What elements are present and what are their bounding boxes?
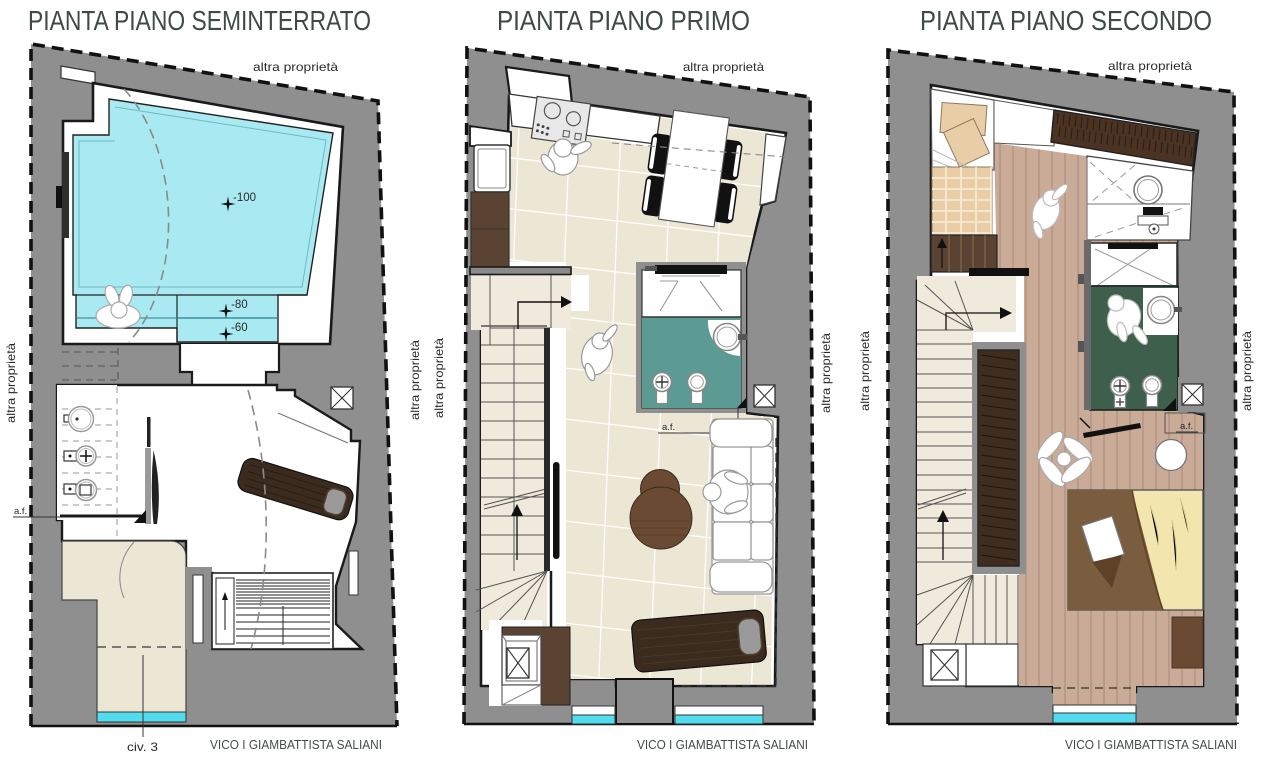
svg-text:altra proprietà: altra proprietà [1240, 331, 1254, 411]
svg-text:PIANTA PIANO SEMINTERRATO: PIANTA PIANO SEMINTERRATO [28, 5, 371, 36]
svg-text:PIANTA PIANO PRIMO: PIANTA PIANO PRIMO [497, 5, 750, 36]
svg-text:VICO I GIAMBATTISTA SALIANI: VICO I GIAMBATTISTA SALIANI [637, 737, 808, 752]
svg-text:altra proprietà: altra proprietà [432, 338, 446, 418]
svg-text:-100: -100 [233, 192, 256, 204]
svg-text:-80: -80 [231, 299, 248, 311]
svg-text:a.f.: a.f. [14, 506, 27, 517]
svg-text:VICO I GIAMBATTISTA SALIANI: VICO I GIAMBATTISTA SALIANI [210, 737, 382, 752]
svg-text:altra proprietà: altra proprietà [408, 340, 422, 420]
svg-text:VICO I GIAMBATTISTA SALIANI: VICO I GIAMBATTISTA SALIANI [1065, 737, 1237, 752]
svg-text:altra proprietà: altra proprietà [683, 60, 764, 74]
svg-text:altra proprietà: altra proprietà [4, 343, 18, 423]
svg-text:-60: -60 [231, 322, 248, 334]
svg-text:civ. 3: civ. 3 [127, 740, 158, 754]
svg-text:altra proprietà: altra proprietà [819, 333, 833, 413]
svg-text:altra proprietà: altra proprietà [1108, 59, 1192, 73]
svg-text:altra proprietà: altra proprietà [253, 60, 338, 74]
svg-text:PIANTA PIANO SECONDO: PIANTA PIANO SECONDO [920, 5, 1212, 36]
svg-text:a.f.: a.f. [1180, 421, 1193, 432]
svg-text:a.f.: a.f. [662, 422, 675, 433]
svg-text:altra proprietà: altra proprietà [858, 331, 872, 411]
